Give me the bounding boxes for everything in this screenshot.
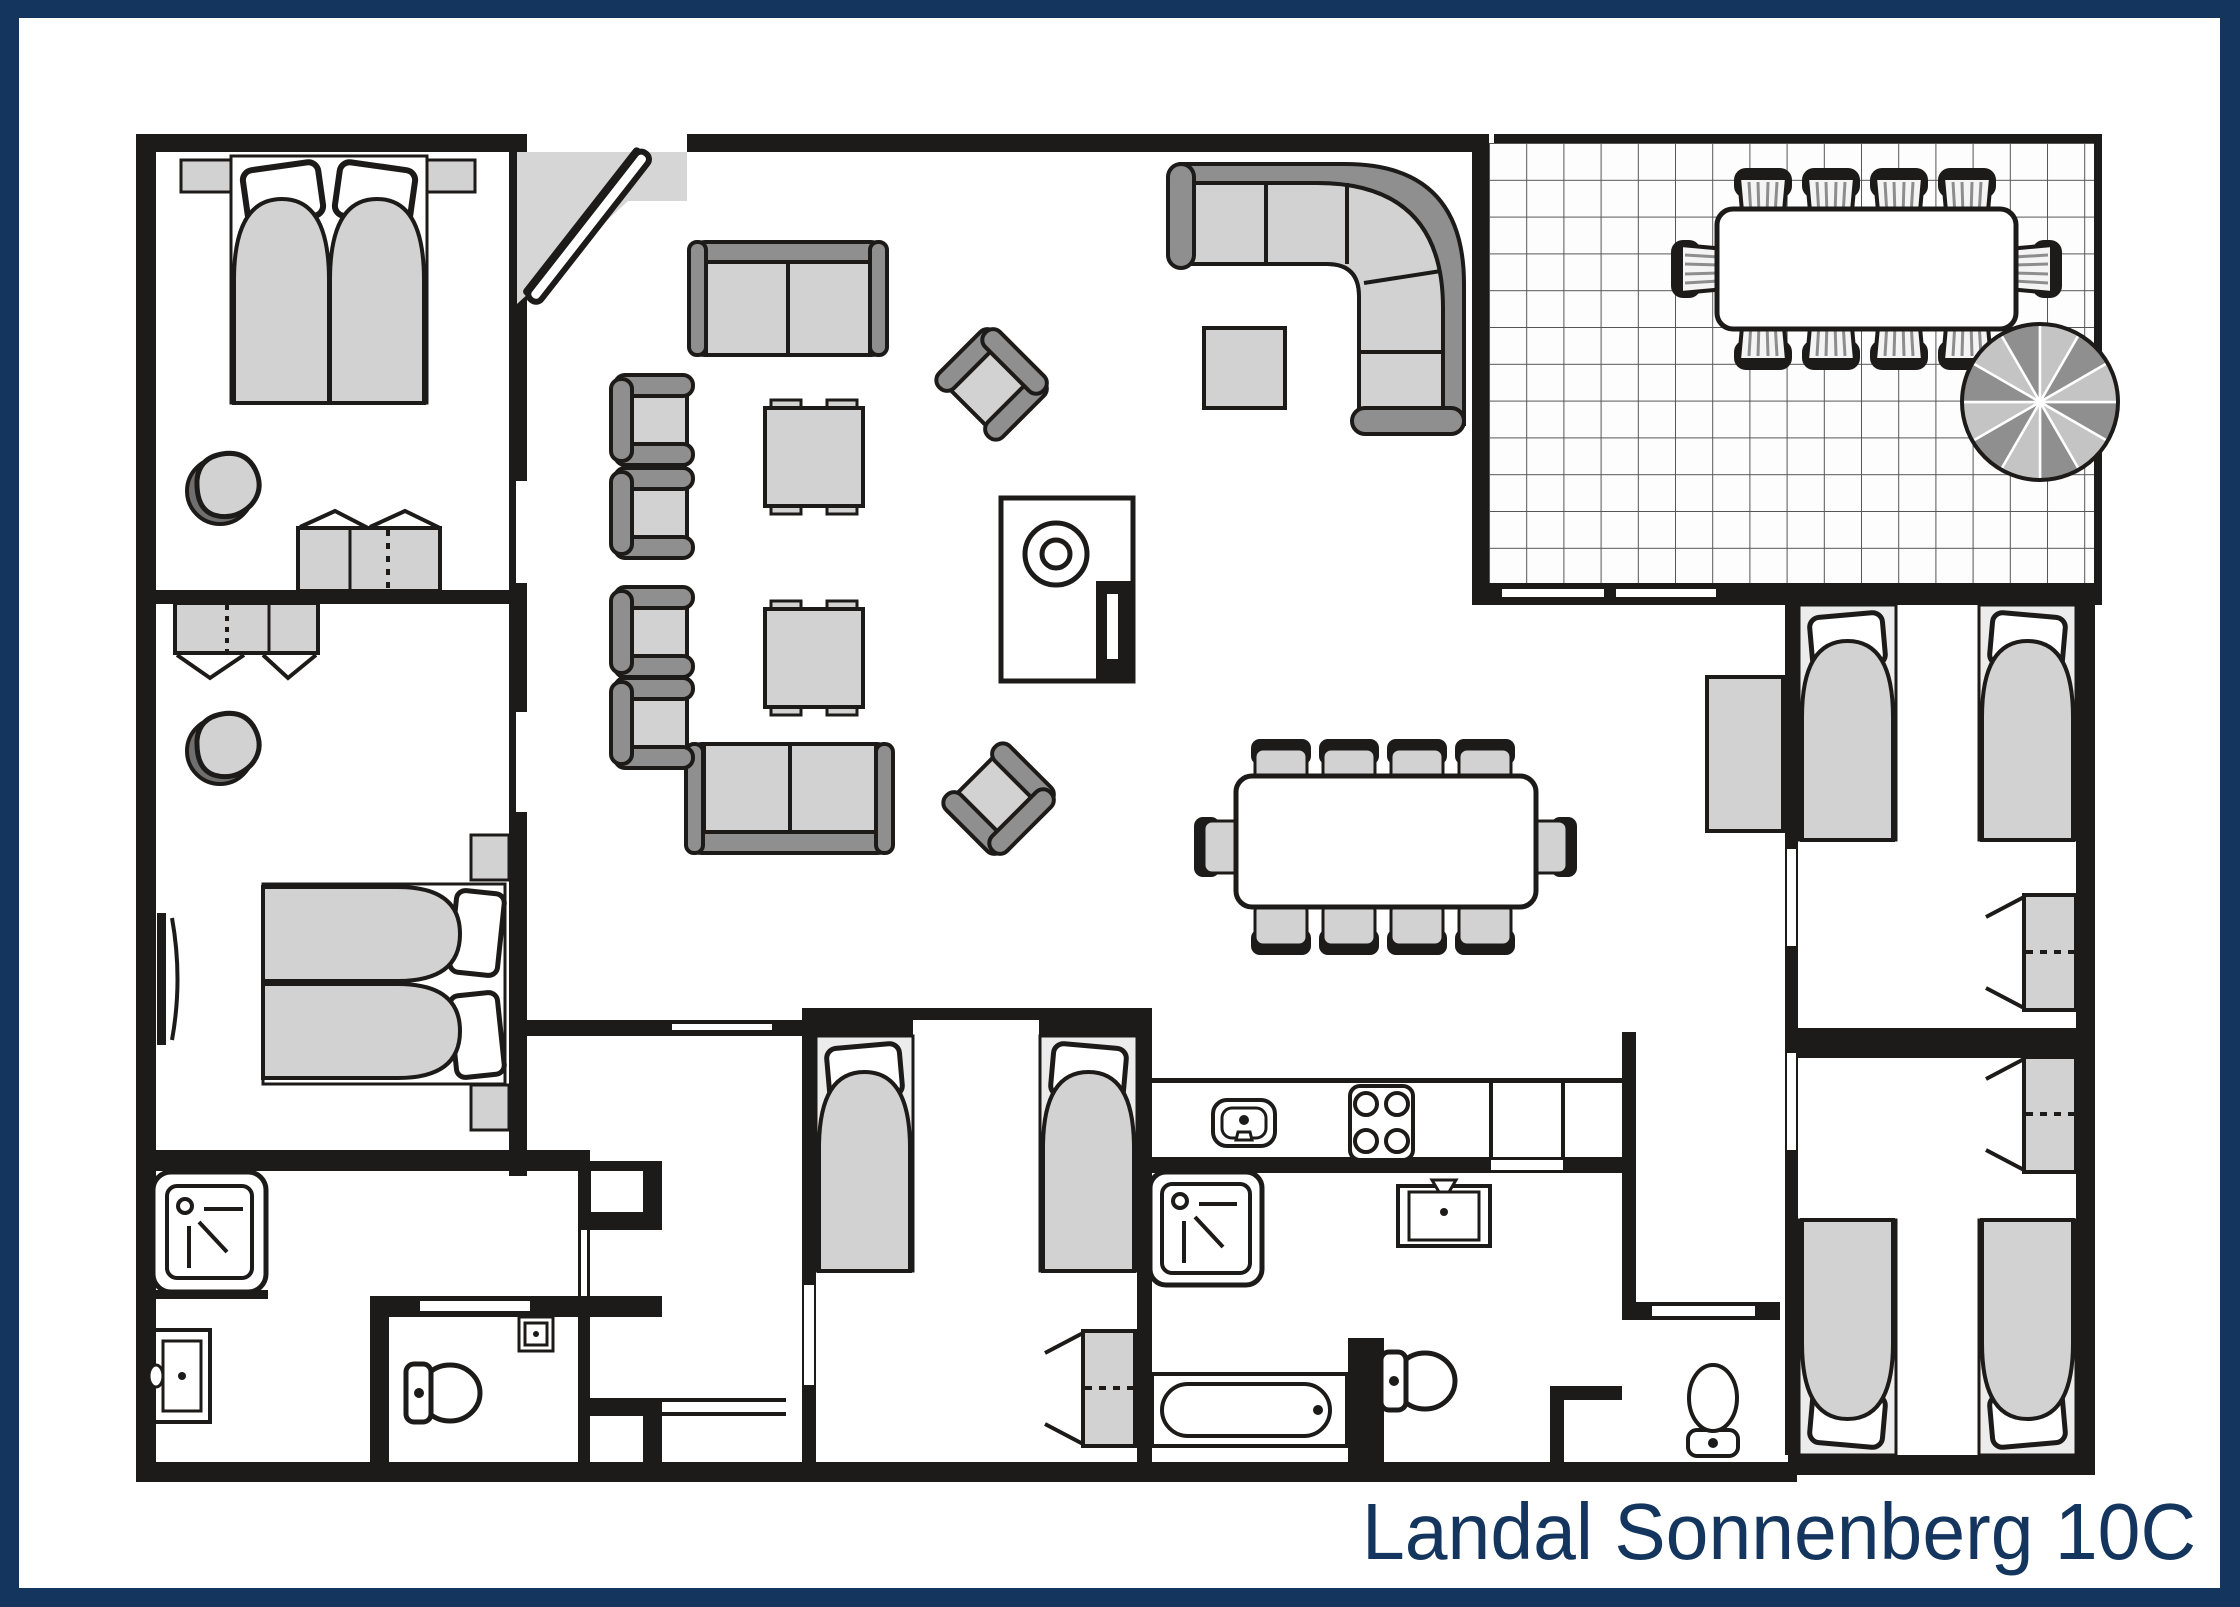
- svg-text:Landal Sonnenberg 10C: Landal Sonnenberg 10C: [1362, 1487, 2196, 1576]
